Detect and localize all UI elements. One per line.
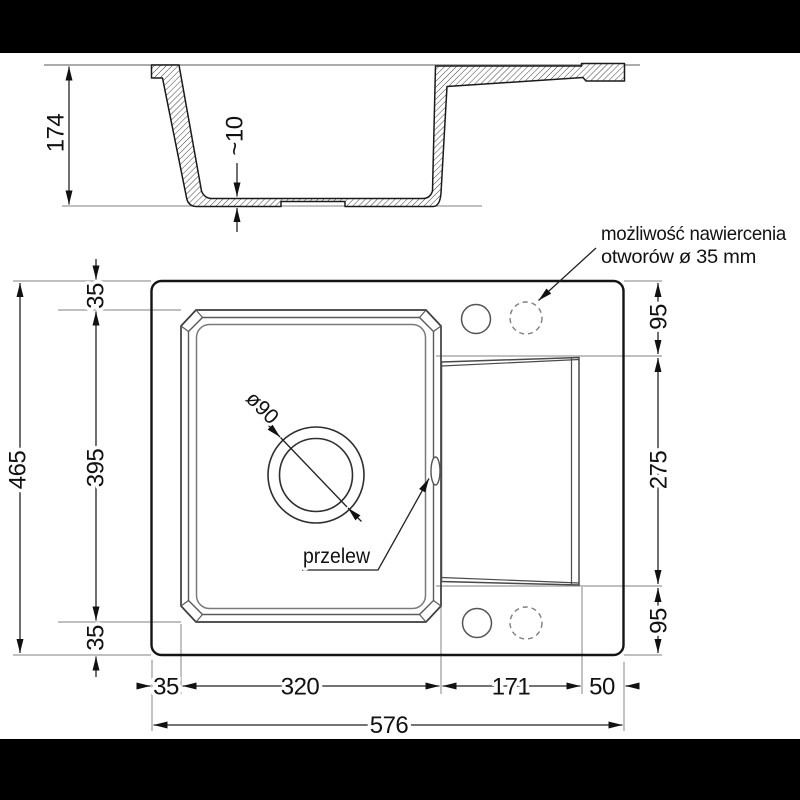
drainboard-outline [442,358,580,586]
dim-board-bottom-offset-label: 95 [646,608,673,634]
drill-note-leader [539,248,597,301]
optional-hole-bottom [510,607,542,639]
dim-board-height-label: 275 [646,451,673,490]
bowl-corner-facets [181,310,441,622]
technical-drawing-page: 174 ~10 [0,0,800,800]
dim-board-top-offset-label: 95 [646,304,673,330]
overflow-label: przelew [303,545,371,568]
optional-hole-top [510,302,542,334]
bottom-letterbox-bar [0,739,800,800]
drain-diameter-label: ø90 [241,387,283,429]
dim-bowl-width-label: 320 [281,674,320,701]
drill-note-line2: otworów ø 35 mm [601,246,756,268]
dim-top-offset-label: 35 [83,283,110,309]
dim-depth-label: 174 [43,114,70,153]
plan-view: ø90 przelew możliwość nawiercenia otworó… [5,223,787,739]
overflow-slot [431,457,440,485]
dim-bottom-thickness-label: ~10 [222,116,249,155]
bowl-rim-outer [181,310,441,622]
sink-dimension-drawing: 174 ~10 [0,0,800,800]
dim-board-width-label: 171 [492,674,531,701]
dim-left-offset-label: 35 [153,674,179,701]
dim-bowl-height-label: 395 [83,449,110,488]
top-letterbox-bar [0,0,800,53]
tap-hole-top [462,305,491,334]
drill-note-line1: możliwość nawiercenia [601,223,786,245]
drain-dim-chord [281,438,348,508]
dim-total-width-label: 576 [370,712,409,739]
dim-right-offset-label: 50 [589,674,615,701]
tap-hole-bottom [463,609,492,638]
dim-bottom-offset-label: 35 [83,625,110,651]
dim-total-height-label: 465 [5,451,32,490]
section-view: 174 ~10 [43,64,641,233]
drain-dim-leader-lower [348,508,362,522]
